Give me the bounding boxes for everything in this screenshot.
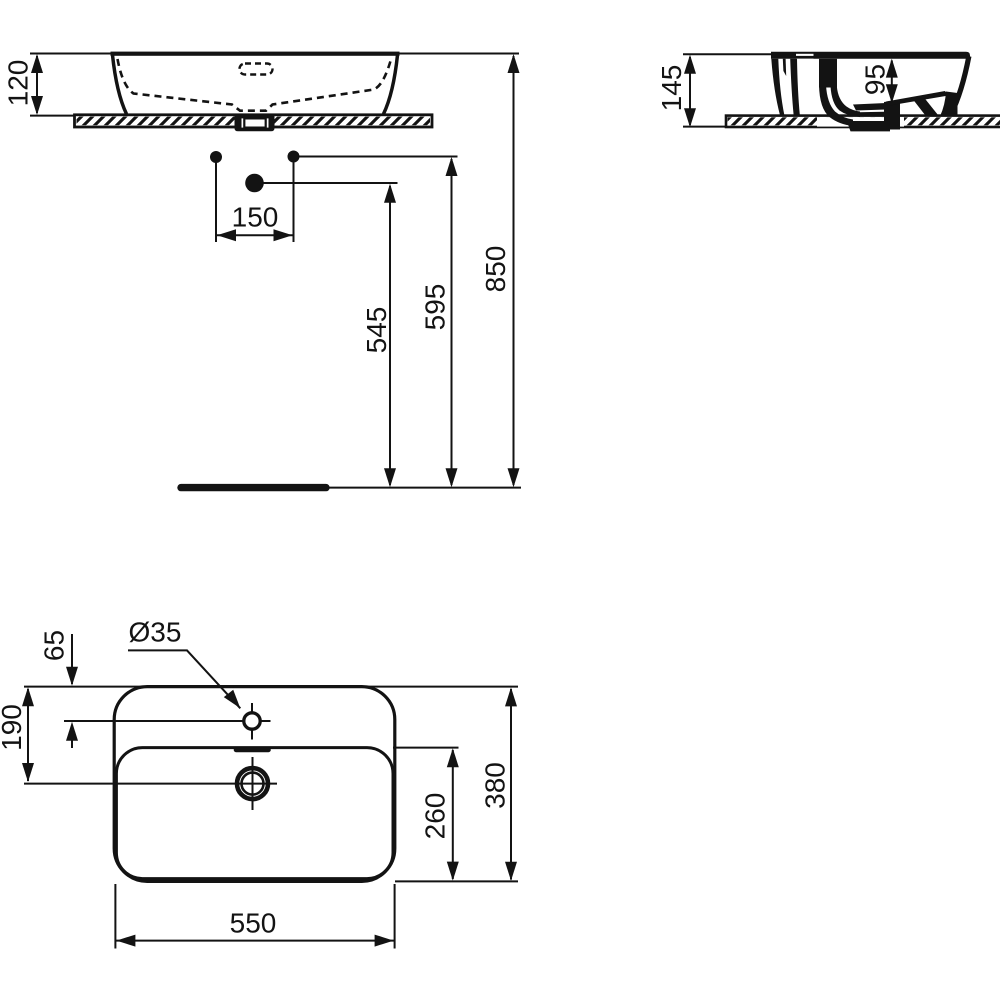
svg-text:260: 260: [420, 793, 451, 840]
svg-text:Ø35: Ø35: [129, 616, 182, 647]
svg-text:190: 190: [0, 704, 27, 751]
svg-text:120: 120: [3, 60, 34, 107]
svg-text:545: 545: [361, 307, 392, 354]
svg-text:145: 145: [656, 65, 687, 112]
svg-text:150: 150: [232, 201, 279, 232]
svg-text:65: 65: [39, 630, 70, 661]
svg-text:95: 95: [860, 64, 891, 95]
svg-text:595: 595: [420, 284, 451, 331]
svg-text:380: 380: [480, 762, 511, 809]
svg-text:550: 550: [230, 908, 277, 939]
svg-text:850: 850: [480, 246, 511, 293]
